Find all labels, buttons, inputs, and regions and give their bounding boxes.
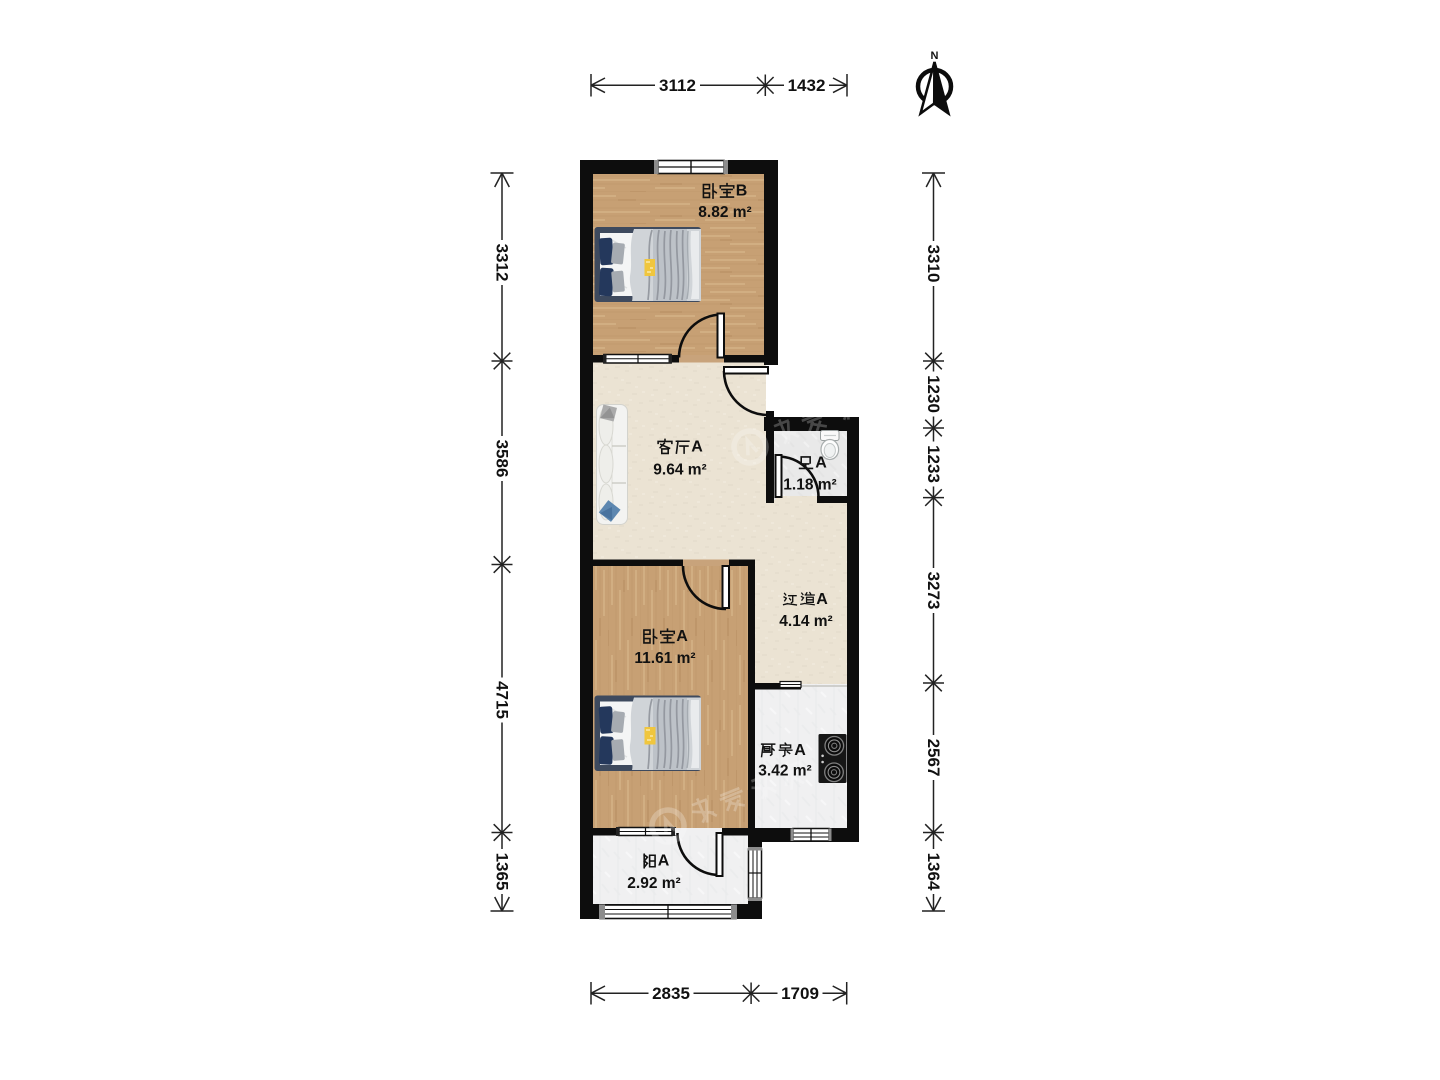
svg-text:A: A bbox=[658, 853, 670, 870]
svg-text:1230: 1230 bbox=[924, 375, 943, 413]
svg-text:1.18 m²: 1.18 m² bbox=[783, 477, 836, 494]
svg-text:3310: 3310 bbox=[924, 245, 943, 283]
svg-text:8.82 m²: 8.82 m² bbox=[698, 204, 751, 221]
svg-text:1364: 1364 bbox=[924, 853, 943, 891]
svg-text:2.92 m²: 2.92 m² bbox=[627, 875, 680, 892]
svg-text:N: N bbox=[931, 50, 939, 62]
svg-text:11.61 m²: 11.61 m² bbox=[634, 650, 695, 667]
svg-text:4.14 m²: 4.14 m² bbox=[779, 613, 832, 630]
svg-text:A: A bbox=[816, 591, 828, 608]
svg-text:3586: 3586 bbox=[493, 440, 512, 478]
svg-text:2835: 2835 bbox=[652, 984, 690, 1003]
svg-text:4715: 4715 bbox=[493, 681, 512, 719]
svg-text:3.42 m²: 3.42 m² bbox=[758, 763, 811, 780]
svg-text:9.64 m²: 9.64 m² bbox=[653, 462, 706, 479]
svg-text:1709: 1709 bbox=[781, 984, 819, 1003]
svg-text:3112: 3112 bbox=[659, 76, 696, 95]
svg-text:A: A bbox=[691, 439, 703, 456]
svg-text:2567: 2567 bbox=[924, 739, 943, 777]
svg-text:A: A bbox=[794, 742, 806, 759]
svg-text:1233: 1233 bbox=[924, 445, 943, 483]
svg-text:3273: 3273 bbox=[924, 572, 943, 610]
svg-text:1365: 1365 bbox=[493, 853, 512, 891]
svg-text:A: A bbox=[676, 628, 688, 645]
svg-text:A: A bbox=[815, 455, 827, 472]
svg-text:B: B bbox=[736, 183, 748, 200]
svg-text:3312: 3312 bbox=[493, 244, 512, 282]
svg-text:1432: 1432 bbox=[788, 76, 826, 95]
